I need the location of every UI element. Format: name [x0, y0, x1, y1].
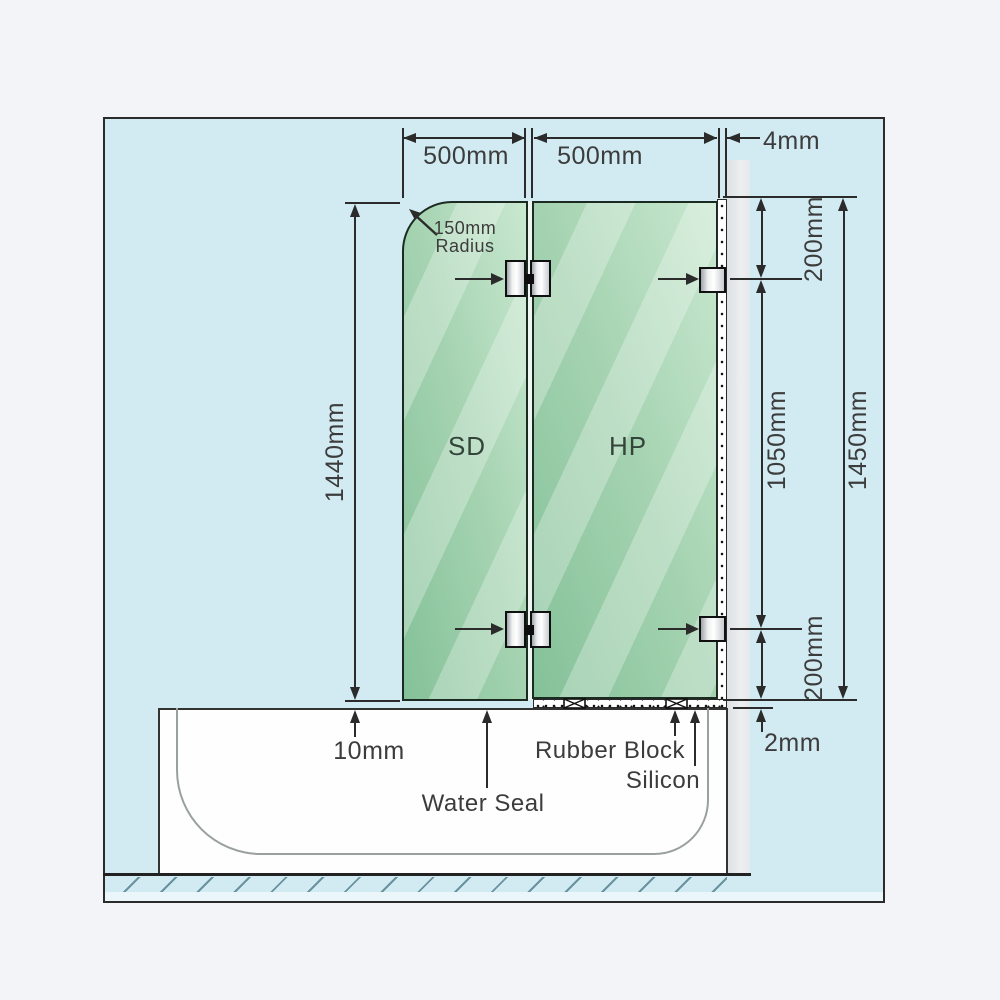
water-seal-label: Water Seal [393, 790, 573, 818]
dim-label-hp-width: 500mm [540, 142, 660, 171]
floor-hatching [104, 877, 727, 892]
radius-label: 150mm Radius [423, 219, 507, 255]
dim-extension-line [718, 128, 720, 198]
dim-arrowhead [756, 686, 766, 699]
dim-line [354, 721, 356, 737]
hinge-leaf [505, 260, 526, 297]
dim-line [761, 209, 763, 267]
dim-label-hp-height: 1450mm [844, 380, 868, 500]
dim-extension-line [730, 628, 802, 630]
dim-extension-line [733, 707, 773, 709]
dim-label-top-offset: 200mm [800, 179, 824, 299]
pointer-line [658, 278, 688, 280]
pointer-arrowhead [491, 273, 504, 285]
wall-bracket-bottom [699, 616, 726, 642]
dim-label-bracket-spacing: 1050mm [763, 380, 787, 500]
panel-label-hp: HP [598, 431, 658, 462]
dim-arrowhead [756, 615, 766, 628]
dim-label-sd-height: 1440mm [321, 392, 345, 512]
hinge-pin [525, 625, 534, 635]
dim-line [534, 137, 717, 139]
dim-arrowhead [350, 687, 360, 700]
wall [727, 160, 750, 875]
dim-extension-line [723, 196, 857, 198]
dim-arrowhead [727, 133, 740, 143]
shower-screen-diagram: SD HP 500mm 500 [0, 0, 1000, 1000]
dim-line [403, 137, 524, 139]
rubber-block-marker [665, 698, 688, 709]
pointer-arrowhead [686, 273, 699, 285]
dim-extension-line [345, 700, 400, 702]
dim-arrowhead [350, 204, 360, 217]
pointer-arrowhead [491, 623, 504, 635]
wall-bracket-top [699, 267, 726, 293]
radius-label-line2: Radius [435, 236, 494, 256]
rubber-block-marker [563, 698, 586, 709]
dim-arrowhead [838, 686, 848, 699]
dim-extension-line [531, 128, 533, 198]
hinge-leaf [505, 611, 526, 648]
dim-label-sd-width: 500mm [406, 142, 526, 171]
floor-light-strip [105, 892, 883, 901]
dim-line [761, 641, 763, 688]
dim-arrowhead [704, 132, 717, 144]
pointer-line [486, 721, 488, 788]
dim-extension-line [730, 278, 802, 280]
floor-line [103, 873, 751, 876]
dim-arrowhead [756, 265, 766, 278]
dim-line [761, 720, 763, 732]
pointer-arrowhead [686, 623, 699, 635]
radius-label-line1: 150mm [434, 218, 497, 238]
pointer-line [694, 721, 696, 766]
panel-label-sd: SD [437, 431, 497, 462]
pointer-line [455, 628, 493, 630]
rubber-block-label: Rubber Block [520, 737, 700, 765]
dim-label-bottom-offset: 200mm [800, 598, 824, 718]
dim-label-base-silicon: 2mm [764, 729, 821, 758]
hinge-pin [525, 274, 534, 284]
dim-extension-line [723, 699, 857, 701]
silicon-label: Silicon [603, 767, 723, 795]
pointer-line [658, 628, 688, 630]
dim-label-tub-gap: 10mm [309, 737, 429, 766]
pointer-line [674, 721, 676, 736]
dim-line [354, 215, 356, 689]
dim-label-wall-gap: 4mm [763, 127, 820, 156]
pointer-line [455, 278, 493, 280]
